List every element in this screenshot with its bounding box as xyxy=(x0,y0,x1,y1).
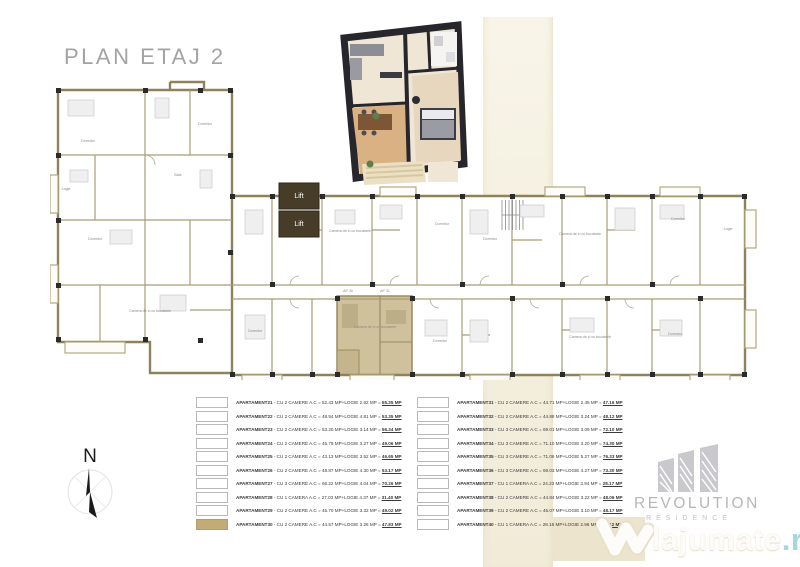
table-row[interactable]: APARTAMENT37 - CU 1 CAMERA A.C = 24.23 M… xyxy=(417,477,647,491)
apartment-name: APARTAMENT30 xyxy=(236,522,273,527)
table-row[interactable]: APARTAMENT36 - CU 3 CAMERE A.C = 69.03 M… xyxy=(417,464,647,478)
table-row[interactable]: APARTAMENT27 - CU 3 CAMERE A.C = 66.22 M… xyxy=(196,477,426,491)
compass: N xyxy=(60,442,120,522)
apartment-total: 53.17 MP xyxy=(382,468,402,473)
apartment-total: 56.34 MP xyxy=(382,427,402,432)
apartment-name: APARTAMENT25 xyxy=(236,454,273,459)
room-label: Baie xyxy=(174,173,181,177)
apartment-desc: - CU 2 CAMERE A.C = 45.70 MP+LOGIE 3.32 … xyxy=(273,508,382,513)
apartment-name: APARTAMENT27 xyxy=(236,481,273,486)
apartment-total: 70.26 MP xyxy=(382,481,402,486)
row-swatch xyxy=(196,519,228,530)
apartment-desc: - CU 2 CAMERE A.C = 43.13 MP+LOGIE 3.52 … xyxy=(273,454,382,459)
apartment-name: APARTAMENT28 xyxy=(236,495,273,500)
row-swatch xyxy=(196,451,228,462)
room-label: Camera de zi cu bucatarie xyxy=(329,229,371,233)
apartment-name: APARTAMENT37 xyxy=(457,481,494,486)
row-swatch xyxy=(417,411,449,422)
lift-label: Lift xyxy=(294,193,303,200)
floorplan: Lift Lift DormitorLogieDormitorCamera de xyxy=(50,80,760,380)
table-row[interactable]: APARTAMENT34 - CU 3 CAMERE A.C = 71.10 M… xyxy=(417,437,647,451)
room-label: Dormitor xyxy=(435,222,450,226)
watermark-text[interactable]: lajumate xyxy=(652,522,782,557)
room-label: Dormitor xyxy=(88,237,103,241)
room-label: Camera de zi cu bucatarie xyxy=(354,325,396,329)
room-label: Dormitor xyxy=(483,237,498,241)
room-label: Dormitor xyxy=(668,332,683,336)
table-row[interactable]: APARTAMENT25 - CU 2 CAMERE A.C = 43.13 M… xyxy=(196,450,426,464)
row-swatch xyxy=(417,465,449,476)
lift-label-2: Lift xyxy=(294,221,303,228)
apartment-total: 47.16 MP xyxy=(603,400,623,405)
table-row[interactable]: APARTAMENT26 - CU 2 CAMERE A.C = 48.87 M… xyxy=(196,464,426,478)
apartment-total: 55.35 MP xyxy=(382,400,402,405)
apartment-desc: - CU 3 CAMERE A.C = 69.03 MP+LOGIE 4.27 … xyxy=(494,468,603,473)
apartment-total: 48.06 MP xyxy=(603,495,623,500)
apartment-desc: - CU 1 CAMERA A.C = 24.23 MP+LOGIE 3.94 … xyxy=(494,481,603,486)
apartment-desc: - CU 2 CAMERE A.C = 53.20 MP+LOGIE 3.14 … xyxy=(273,427,382,432)
apartment-desc: - CU 1 CAMERA A.C = 27.03 MP+LOGIE 4.37 … xyxy=(273,495,382,500)
room-label: Logie xyxy=(62,187,71,191)
watermark: lajumate.ro xyxy=(596,516,800,566)
brand-name: REVOLUTION xyxy=(634,495,744,513)
plan-page: PLAN ETAJ 2 xyxy=(0,0,800,567)
apartment-total: 53.35 MP xyxy=(382,414,402,419)
apartment-name: APARTAMENT39 xyxy=(457,508,494,513)
table-row[interactable]: APARTAMENT24 - CU 2 CAMERE A.C = 45.79 M… xyxy=(196,437,426,451)
compass-needle xyxy=(86,468,90,496)
apartment-total: 31.40 MP xyxy=(382,495,402,500)
apartment-name: APARTAMENT36 xyxy=(457,468,494,473)
apartment-desc: - CU 2 CAMERE A.C = 44.57 MP+LOGIE 3.26 … xyxy=(273,522,382,527)
room-label: Dormitor xyxy=(671,217,686,221)
apartment-total: 48.17 MP xyxy=(603,508,623,513)
table-row[interactable]: APARTAMENT28 - CU 1 CAMERA A.C = 27.03 M… xyxy=(196,491,426,505)
apartment-total: 76.33 MP xyxy=(603,454,623,459)
table-row[interactable]: APARTAMENT22 - CU 2 CAMERE A.C = 48.54 M… xyxy=(196,410,426,424)
apartment-name: APARTAMENT23 xyxy=(236,427,273,432)
apartment-desc: - CU 3 CAMERE A.C = 71.06 MP+LOGIE 5.27 … xyxy=(494,454,603,459)
apartment-total: 48.12 MP xyxy=(603,414,623,419)
table-row[interactable]: APARTAMENT38 - CU 2 CAMERE A.C = 44.84 M… xyxy=(417,491,647,505)
apartment-name: APARTAMENT35 xyxy=(457,454,494,459)
table-row[interactable]: APARTAMENT30 - CU 2 CAMERE A.C = 44.57 M… xyxy=(196,518,426,532)
apartment-name: APARTAMENT22 xyxy=(236,414,273,419)
row-swatch xyxy=(417,397,449,408)
apartment-total: 74.30 MP xyxy=(603,441,623,446)
lajumate-icon xyxy=(596,516,654,566)
apartment-name: APARTAMENT24 xyxy=(236,441,273,446)
room-label: Dormitor xyxy=(198,122,213,126)
buildings-icon xyxy=(650,444,728,492)
apartment-total: 73.30 MP xyxy=(603,468,623,473)
table-row[interactable]: APARTAMENT23 - CU 2 CAMERE A.C = 53.20 M… xyxy=(196,423,426,437)
apartment-desc: - CU 2 CAMERE A.C = 44.88 MP+LOGIE 3.24 … xyxy=(494,414,603,419)
room-label: Logie xyxy=(724,227,733,231)
apartment-total: 49.06 MP xyxy=(382,441,402,446)
apartment-table-right: APARTAMENT31 - CU 2 CAMERE A.C = 44.71 M… xyxy=(417,396,647,531)
apartment-table-left: APARTAMENT21 - CU 2 CAMERE A.C = 52.43 M… xyxy=(196,396,426,531)
apartment-total: 72.10 MP xyxy=(603,427,623,432)
row-swatch xyxy=(417,505,449,516)
table-row[interactable]: APARTAMENT35 - CU 3 CAMERE A.C = 71.06 M… xyxy=(417,450,647,464)
apartment-name: APARTAMENT34 xyxy=(457,441,494,446)
apartment-desc: - CU 2 CAMERE A.C = 48.87 MP+LOGIE 4.30 … xyxy=(273,468,382,473)
row-swatch xyxy=(417,424,449,435)
apartment-desc: - CU 2 CAMERE A.C = 45.07 MP+LOGIE 3.10 … xyxy=(494,508,603,513)
row-swatch xyxy=(196,438,228,449)
apartment-desc: - CU 2 CAMERE A.C = 44.71 MP+LOGIE 2.45 … xyxy=(494,400,603,405)
apartment-desc: - CU 3 CAMERE A.C = 69.01 MP+LOGIE 3.09 … xyxy=(494,427,603,432)
table-row[interactable]: APARTAMENT29 - CU 2 CAMERE A.C = 45.70 M… xyxy=(196,504,426,518)
apartment-name: APARTAMENT32 xyxy=(457,414,494,419)
compass-n-label: N xyxy=(83,446,97,467)
row-swatch xyxy=(196,411,228,422)
page-title: PLAN ETAJ 2 xyxy=(64,44,226,70)
row-swatch xyxy=(417,438,449,449)
apartment-desc: - CU 2 CAMERE A.C = 52.43 MP+LOGIE 2.92 … xyxy=(273,400,382,405)
table-row[interactable]: APARTAMENT33 - CU 3 CAMERE A.C = 69.01 M… xyxy=(417,423,647,437)
row-swatch xyxy=(196,478,228,489)
apartment-name: APARTAMENT31 xyxy=(457,400,494,405)
watermark-tld[interactable]: .ro xyxy=(782,522,800,557)
room-label: Camera de zi cu bucatarie xyxy=(129,309,171,313)
apartment-total: 47.83 MP xyxy=(382,522,402,527)
apartment-desc: - CU 2 CAMERE A.C = 48.54 MP+LOGIE 4.81 … xyxy=(273,414,382,419)
room-label: AP 30 xyxy=(343,289,353,293)
row-swatch xyxy=(196,397,228,408)
brand-logo: REVOLUTION RESIDENCE xyxy=(634,444,744,522)
highlighted-apartment[interactable] xyxy=(337,296,412,375)
room-label: Camera de zi cu bucatarie xyxy=(559,232,601,236)
room-label: AP 31 xyxy=(380,289,390,293)
table-row[interactable]: APARTAMENT32 - CU 2 CAMERE A.C = 44.88 M… xyxy=(417,410,647,424)
apartment-desc: - CU 2 CAMERE A.C = 45.79 MP+LOGIE 3.27 … xyxy=(273,441,382,446)
apartment-desc: - CU 2 CAMERE A.C = 44.84 MP+LOGIE 3.22 … xyxy=(494,495,603,500)
room-label: Dormitor xyxy=(81,139,96,143)
room-label: Camera de zi cu bucatarie xyxy=(569,335,611,339)
room-label: Dormitor xyxy=(433,339,448,343)
apartment-desc: - CU 3 CAMERE A.C = 71.10 MP+LOGIE 3.20 … xyxy=(494,441,603,446)
row-swatch xyxy=(417,519,449,530)
apartment-name: APARTAMENT29 xyxy=(236,508,273,513)
apartment-desc: - CU 1 CAMERA A.C = 28.16 MP+LOGIE 2.96 … xyxy=(494,522,603,527)
room-label: Dormitor xyxy=(248,329,263,333)
apartment-name: APARTAMENT26 xyxy=(236,468,273,473)
apartment-name: APARTAMENT40 xyxy=(457,522,494,527)
apartment-total: 46.65 MP xyxy=(382,454,402,459)
row-swatch xyxy=(417,492,449,503)
table-row[interactable]: APARTAMENT21 - CU 2 CAMERE A.C = 52.43 M… xyxy=(196,396,426,410)
row-swatch xyxy=(417,478,449,489)
row-swatch xyxy=(196,492,228,503)
row-swatch xyxy=(196,505,228,516)
apartment-name: APARTAMENT33 xyxy=(457,427,494,432)
apartment-total: 49.02 MP xyxy=(382,508,402,513)
row-swatch xyxy=(196,465,228,476)
table-row[interactable]: APARTAMENT31 - CU 2 CAMERE A.C = 44.71 M… xyxy=(417,396,647,410)
apartment-desc: - CU 3 CAMERE A.C = 66.22 MP+LOGIE 4.04 … xyxy=(273,481,382,486)
row-swatch xyxy=(196,424,228,435)
apartment-name: APARTAMENT21 xyxy=(236,400,273,405)
apartment-total: 28.17 MP xyxy=(603,481,623,486)
apartment-name: APARTAMENT38 xyxy=(457,495,494,500)
row-swatch xyxy=(417,451,449,462)
